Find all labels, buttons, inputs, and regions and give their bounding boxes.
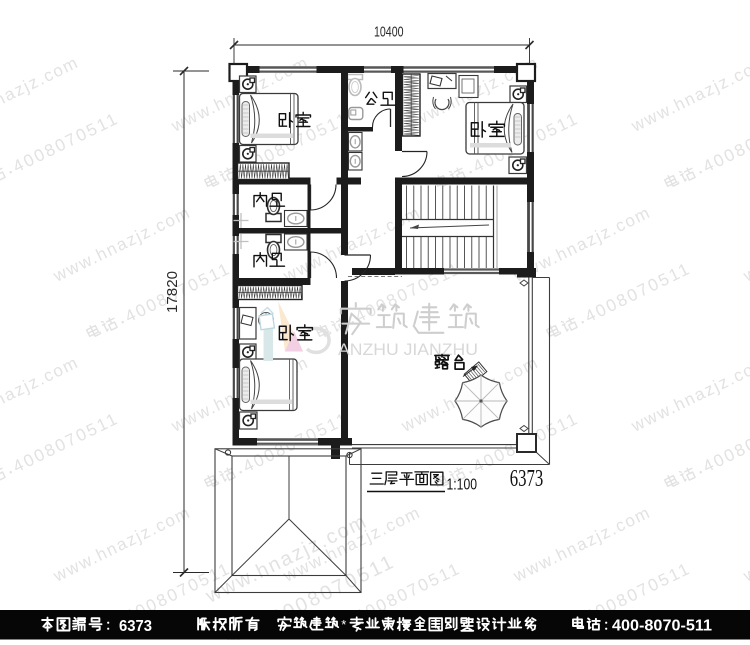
svg-text:6373: 6373 xyxy=(119,618,152,635)
svg-text:6373: 6373 xyxy=(510,466,544,492)
svg-text:*: * xyxy=(341,617,346,632)
svg-text:1:100: 1:100 xyxy=(447,477,478,494)
svg-text:10400: 10400 xyxy=(374,24,404,41)
svg-text:17820: 17820 xyxy=(164,271,181,313)
svg-text:400-8070-511: 400-8070-511 xyxy=(612,618,712,635)
